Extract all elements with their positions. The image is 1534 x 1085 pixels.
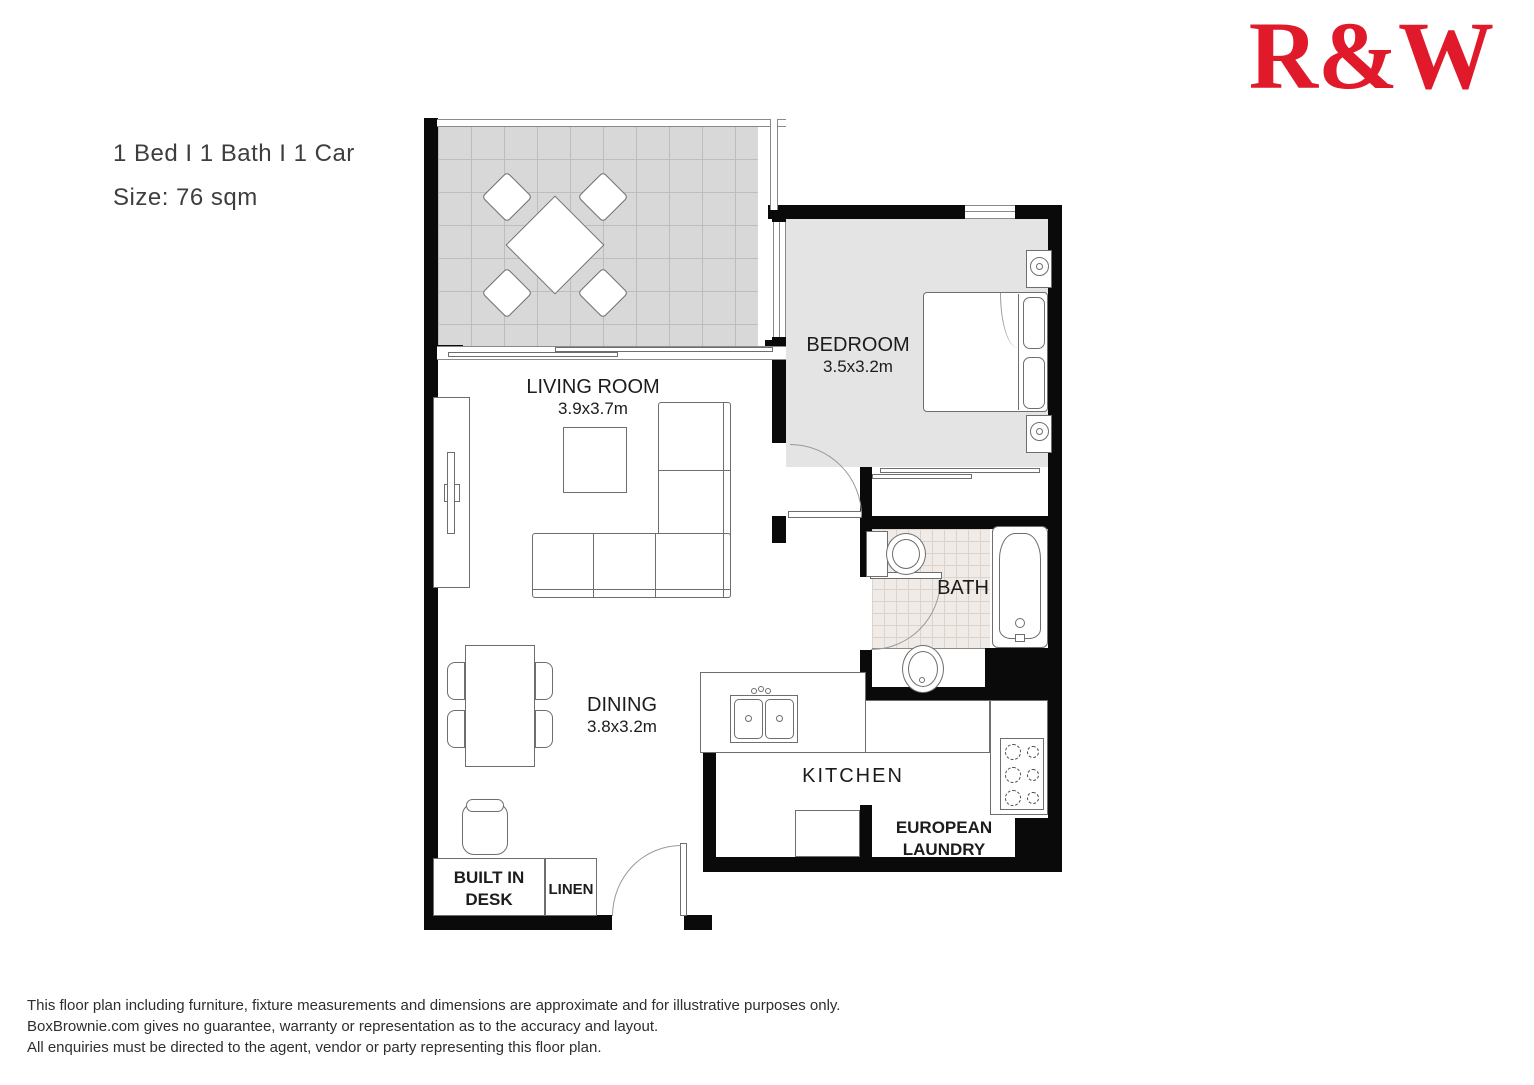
room-name: LAUNDRY <box>896 839 992 861</box>
pillow-icon <box>1023 297 1045 349</box>
toilet-bowl-icon <box>892 539 920 569</box>
wall-segment <box>703 753 716 863</box>
sink-drain-icon <box>776 715 783 722</box>
living-room-label: LIVING ROOM 3.9x3.7m <box>526 376 659 420</box>
dining-chair-icon <box>447 662 465 700</box>
tv-icon <box>447 452 455 534</box>
wall-segment <box>772 516 786 543</box>
room-name: BEDROOM <box>806 334 909 356</box>
room-name: DESK <box>454 889 525 911</box>
lamp-icon <box>1036 263 1043 270</box>
laundry-label: EUROPEAN LAUNDRY <box>896 817 992 861</box>
room-name: LINEN <box>549 879 594 901</box>
dining-chair-icon <box>535 662 553 700</box>
burner-icon <box>1027 769 1039 781</box>
wall-segment <box>684 915 712 930</box>
bedroom-window <box>965 205 1015 219</box>
sofa-cushion-line <box>658 470 731 471</box>
sliding-door-panel <box>555 347 773 352</box>
kitchen-counter <box>865 700 990 753</box>
disclaimer-line: All enquiries must be directed to the ag… <box>27 1037 840 1058</box>
toilet-cistern-icon <box>866 531 888 577</box>
linen-label: LINEN <box>549 879 594 901</box>
wall-segment <box>768 205 965 219</box>
bedroom-label: BEDROOM 3.5x3.2m <box>806 334 909 378</box>
disclaimer-line: BoxBrownie.com gives no guarantee, warra… <box>27 1016 840 1037</box>
wall-segment <box>1048 205 1062 872</box>
sink-tap-icon <box>765 688 771 694</box>
wardrobe-sliding-door <box>872 474 972 479</box>
room-name: KITCHEN <box>802 765 904 787</box>
wall-segment <box>1015 205 1062 219</box>
kitchen-label: KITCHEN <box>802 765 904 787</box>
dining-label: DINING 3.8x3.2m <box>587 694 657 738</box>
burner-icon <box>1005 790 1021 806</box>
room-dims: 3.8x3.2m <box>587 716 657 738</box>
room-name: BUILT IN <box>454 867 525 889</box>
bedroom-window <box>773 222 786 337</box>
room-dims: 3.9x3.7m <box>526 398 659 420</box>
wall-segment <box>860 805 872 857</box>
sink-tap-icon <box>758 686 764 692</box>
built-in-desk-label: BUILT IN DESK <box>454 867 525 911</box>
window-glass-line <box>965 211 1015 212</box>
window-glass-line <box>779 222 780 337</box>
dining-table-icon <box>465 645 535 767</box>
wardrobe-sliding-door <box>880 468 1040 473</box>
property-size: Size: 76 sqm <box>113 184 258 212</box>
sofa-back-line <box>723 402 724 598</box>
room-name: DINING <box>587 694 657 716</box>
room-name: BATH <box>937 577 989 599</box>
burner-icon <box>1027 792 1039 804</box>
bathtub-drain-icon <box>1015 618 1025 628</box>
coffee-table-icon <box>563 427 627 493</box>
wall-segment <box>985 648 1062 700</box>
lamp-icon <box>1036 428 1043 435</box>
property-specs: 1 Bed I 1 Bath I 1 Car <box>113 140 355 168</box>
entry-door <box>680 843 687 916</box>
wall-segment <box>424 915 612 930</box>
room-name: LIVING ROOM <box>526 376 659 398</box>
pillow-icon <box>1023 357 1045 409</box>
floor-plan-page: { "header": { "specs": "1 Bed I 1 Bath I… <box>0 0 1534 1085</box>
bathtub-tap-icon <box>1015 634 1025 642</box>
bed-pillow-line <box>1018 294 1019 410</box>
room-name: EUROPEAN <box>896 817 992 839</box>
dining-chair-icon <box>535 710 553 748</box>
desk-chair-back-icon <box>466 799 504 812</box>
appliance-space <box>795 810 860 857</box>
sliding-door-panel <box>448 352 618 357</box>
disclaimer: This floor plan including furniture, fix… <box>27 995 840 1058</box>
room-dims: 3.5x3.2m <box>806 356 909 378</box>
burner-icon <box>1005 744 1021 760</box>
sink-tap-icon <box>751 688 757 694</box>
balcony-railing <box>437 119 786 127</box>
sink-drain-icon <box>745 715 752 722</box>
burner-icon <box>1027 746 1039 758</box>
basin-tap-icon <box>919 677 925 683</box>
burner-icon <box>1005 767 1021 783</box>
bath-label: BATH <box>937 577 989 599</box>
disclaimer-line: This floor plan including furniture, fix… <box>27 995 840 1016</box>
agency-logo: R&W <box>1238 2 1494 110</box>
sofa-back-line <box>532 589 731 590</box>
entry-door-swing <box>612 845 681 916</box>
balcony-railing <box>770 119 778 210</box>
dining-chair-icon <box>447 710 465 748</box>
